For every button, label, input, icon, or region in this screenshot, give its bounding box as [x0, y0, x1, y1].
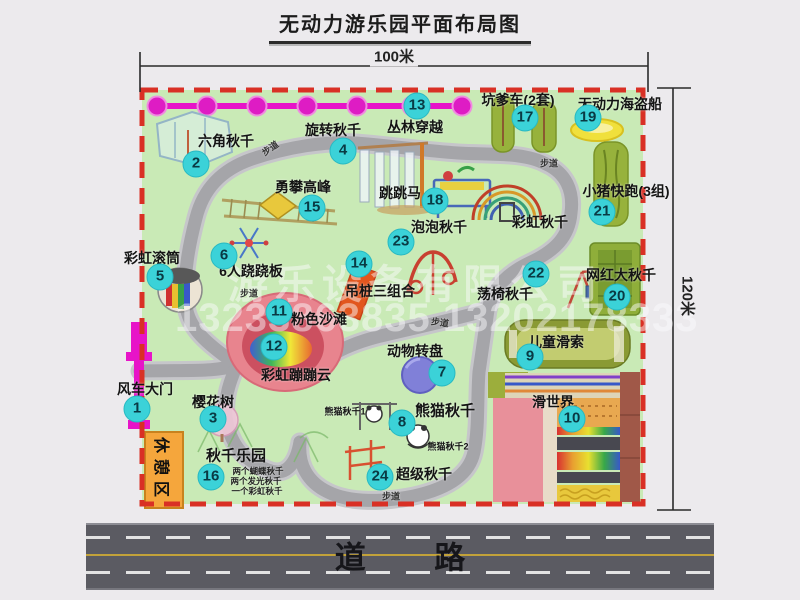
- label-rotating-swing: 旋转秋千: [305, 120, 361, 140]
- marker-5: 5: [147, 264, 174, 291]
- label-rainbow-cloud: 彩虹蹦蹦云: [261, 365, 331, 385]
- marker-17: 17: [512, 105, 539, 132]
- marker-21: 21: [589, 199, 616, 226]
- label-panda-swing: 熊猫秋千: [415, 400, 475, 421]
- marker-9: 9: [517, 344, 544, 371]
- label-windmill-gate: 风车大门: [117, 379, 173, 399]
- page-title: 无动力游乐园平面布局图: [269, 8, 531, 44]
- label-pink-beach: 粉色沙滩: [291, 309, 347, 329]
- dimension-width-label: 100米: [370, 46, 418, 67]
- label-swing-park: 秋千乐园: [206, 445, 266, 466]
- title-wrap: 无动力游乐园平面布局图: [0, 8, 800, 44]
- marker-6: 6: [211, 243, 238, 270]
- dimension-height-label: 120米: [678, 276, 699, 316]
- rest-area-label: 休憩区: [151, 437, 175, 503]
- marker-23: 23: [388, 229, 415, 256]
- walkway-label-2: 步道: [540, 157, 558, 170]
- label-pig-run: 小猪快跑(3组): [582, 181, 669, 201]
- marker-7: 7: [429, 360, 456, 387]
- road-label: 道 路: [86, 532, 714, 577]
- road: 道 路: [86, 523, 714, 590]
- label-panda-swing-2: 熊猫秋千2: [427, 440, 468, 453]
- label-super-swing: 超级秋千: [396, 464, 452, 484]
- marker-15: 15: [299, 195, 326, 222]
- label-swing-chair: 荡椅秋千: [477, 284, 533, 304]
- label-hexagon-swing: 六角秋千: [198, 131, 254, 151]
- marker-2: 2: [183, 151, 210, 178]
- marker-1: 1: [124, 396, 151, 423]
- marker-19: 19: [575, 105, 602, 132]
- label-climbing-peak: 勇攀高峰: [275, 177, 331, 197]
- marker-12: 12: [261, 334, 288, 361]
- walkway-label-5: 步道: [382, 490, 400, 503]
- label-hanging-pile: 吊桩三组合: [345, 281, 415, 301]
- label-jungle-crossing: 丛林穿越: [387, 117, 443, 137]
- marker-3: 3: [200, 406, 227, 433]
- marker-18: 18: [422, 188, 449, 215]
- marker-10: 10: [559, 406, 586, 433]
- marker-14: 14: [346, 251, 373, 278]
- marker-8: 8: [389, 410, 416, 437]
- marker-4: 4: [330, 138, 357, 165]
- marker-16: 16: [198, 464, 225, 491]
- marker-20: 20: [604, 284, 631, 311]
- park-layout-map: 无动力游乐园平面布局图: [0, 0, 800, 600]
- marker-22: 22: [523, 261, 550, 288]
- label-animal-turntable: 动物转盘: [387, 341, 443, 361]
- label-bubble-swing: 泡泡秋千: [411, 217, 467, 237]
- marker-13: 13: [404, 93, 431, 120]
- walkway-label-3: 步道: [240, 287, 258, 300]
- label-big-swing: 网红大秋千: [586, 265, 656, 285]
- swing-park-note-3: 一个彩虹秋千: [231, 485, 282, 497]
- label-jumping-horse: 跳跳马: [379, 183, 421, 203]
- marker-11: 11: [266, 299, 293, 326]
- walkway-label-4: 步道: [430, 314, 450, 329]
- label-rainbow-swing: 彩虹秋千: [512, 212, 568, 232]
- marker-24: 24: [367, 464, 394, 491]
- label-panda-swing-1: 熊猫秋千1: [324, 405, 365, 418]
